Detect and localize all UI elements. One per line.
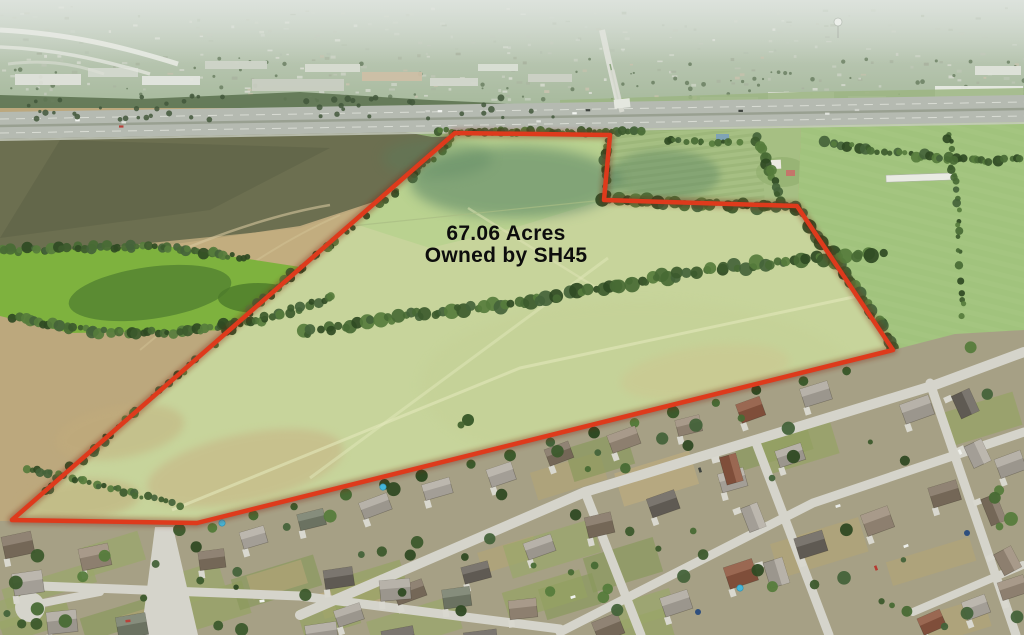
aerial-photo-canvas (0, 0, 1024, 635)
aerial-photo: 67.06 Acres Owned by SH45 (0, 0, 1024, 635)
